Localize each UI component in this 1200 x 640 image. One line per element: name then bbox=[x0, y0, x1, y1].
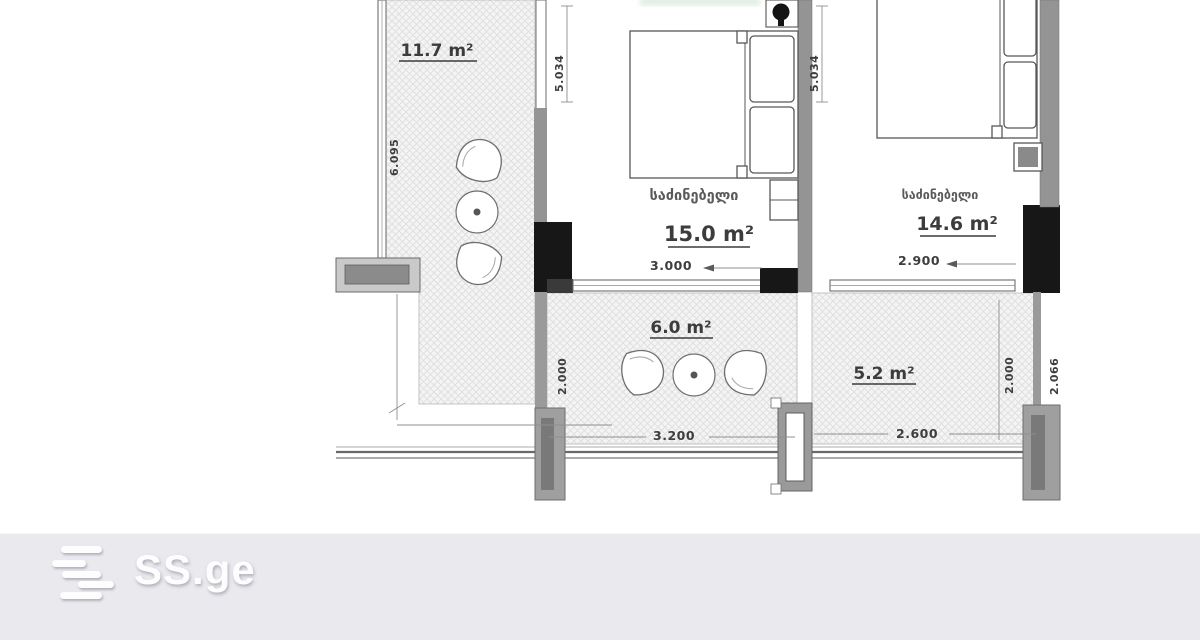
logo-bar bbox=[78, 581, 114, 588]
balcony-left-furniture bbox=[452, 135, 507, 290]
railing-lines bbox=[336, 447, 1060, 458]
ssge-logo-icon bbox=[52, 545, 118, 599]
label-bedroom1-name: საძინებელი bbox=[650, 188, 739, 204]
screenshot-root: 6.095 5.034 5.034 3.000 2.900 2.000 3.20… bbox=[0, 0, 1200, 640]
label-bedroom2-name: საძინებელი bbox=[902, 187, 979, 202]
floor-plan: 6.095 5.034 5.034 3.000 2.900 2.000 3.20… bbox=[0, 0, 1200, 533]
logo-bar bbox=[61, 546, 102, 553]
bed-bedroom2 bbox=[877, 0, 1042, 171]
dim-bedroom1-width: 3.000 bbox=[650, 258, 692, 273]
dim-bedroom2-width: 2.900 bbox=[898, 253, 940, 268]
ssge-logo[interactable]: SS.ge bbox=[52, 545, 256, 599]
dim-balcony-right-depth: 2.000 bbox=[1003, 357, 1016, 394]
dim-balcony-center-width: 3.200 bbox=[653, 428, 695, 443]
ssge-logo-text: SS.ge bbox=[134, 546, 256, 594]
label-bedroom1-area: 15.0 m² bbox=[664, 222, 754, 246]
dim-right-edge: 2.066 bbox=[1048, 358, 1061, 395]
logo-bar bbox=[60, 592, 102, 599]
dim-left-total: 6.095 bbox=[388, 139, 401, 176]
label-balcony-right-area: 5.2 m² bbox=[853, 364, 914, 384]
dim-balcony-center-depth: 2.000 bbox=[556, 358, 569, 395]
label-balcony-center-area: 6.0 m² bbox=[650, 318, 711, 338]
label-bedroom2-area: 14.6 m² bbox=[916, 213, 998, 235]
balcony-center-furniture bbox=[619, 347, 770, 397]
label-balcony-left-area: 11.7 m² bbox=[400, 41, 473, 61]
logo-bar bbox=[62, 571, 101, 578]
dim-bedroom2-wall: 5.034 bbox=[808, 55, 821, 92]
logo-bar bbox=[52, 560, 86, 567]
door-symbol-icon bbox=[766, 0, 798, 27]
dim-bedroom1-wall: 5.034 bbox=[553, 55, 566, 92]
cropped-green-marking bbox=[640, 0, 760, 6]
watermark-footer: SS.ge bbox=[0, 533, 1200, 640]
dim-balcony-right-width: 2.600 bbox=[896, 426, 938, 441]
